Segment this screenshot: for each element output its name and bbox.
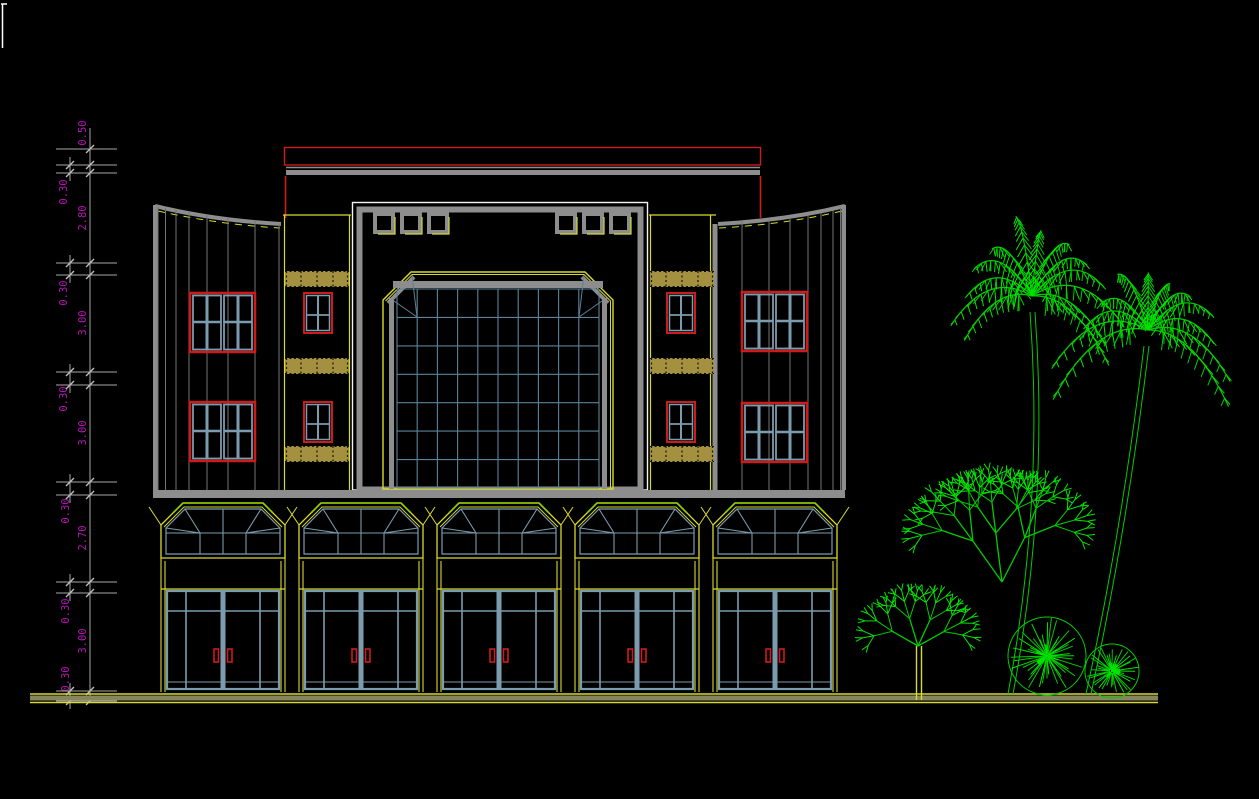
- cad-viewport[interactable]: 0.50 0.30 2.80 0.30 3.00 0.30 3.00 0.30 …: [0, 0, 1259, 799]
- dimension-chain: 0.50 0.30 2.80 0.30 3.00 0.30 3.00 0.30 …: [56, 120, 117, 709]
- strip-window: [667, 293, 695, 333]
- shop-bay: [425, 503, 573, 692]
- strip-window: [667, 402, 695, 442]
- right-wing: [713, 205, 847, 490]
- dim-label: 0.30: [60, 598, 72, 623]
- right-strip: [649, 215, 716, 490]
- floor-slab: [153, 490, 845, 498]
- shopfront-row: [149, 503, 849, 692]
- left-wing: [153, 205, 281, 490]
- ground-line: [30, 694, 1158, 703]
- vegetation: [855, 216, 1232, 700]
- dim-label: 3.00: [77, 628, 89, 653]
- dim-label: 0.30: [58, 386, 70, 411]
- strip-window: [304, 293, 332, 333]
- dim-label: 0.30: [58, 179, 70, 204]
- wing-window: [190, 402, 255, 461]
- cursor-mark: [1, 4, 7, 48]
- dim-label: 0.30: [58, 280, 70, 305]
- curtain-wall: [383, 272, 613, 489]
- dim-label: 3.00: [77, 310, 89, 335]
- dim-label: 3.00: [77, 420, 89, 445]
- cad-drawing-canvas[interactable]: 0.50 0.30 2.80 0.30 3.00 0.30 3.00 0.30 …: [0, 0, 1259, 799]
- dim-label: 0.50: [77, 120, 89, 145]
- curtain-grid: [397, 289, 599, 488]
- central-tower: [353, 203, 648, 491]
- wing-window: [190, 293, 255, 352]
- shop-bay: [563, 503, 711, 692]
- wing-window: [742, 292, 807, 351]
- strip-window: [304, 402, 332, 442]
- roof-vent-row: [375, 214, 631, 234]
- shop-bay: [287, 503, 435, 692]
- dim-label: 2.80: [77, 205, 89, 230]
- shop-bay: [149, 503, 297, 692]
- wing-window: [742, 403, 807, 462]
- shop-bay: [701, 503, 849, 692]
- left-strip: [283, 215, 351, 490]
- building-elevation: [30, 148, 1158, 703]
- dim-label: 2.70: [77, 525, 89, 550]
